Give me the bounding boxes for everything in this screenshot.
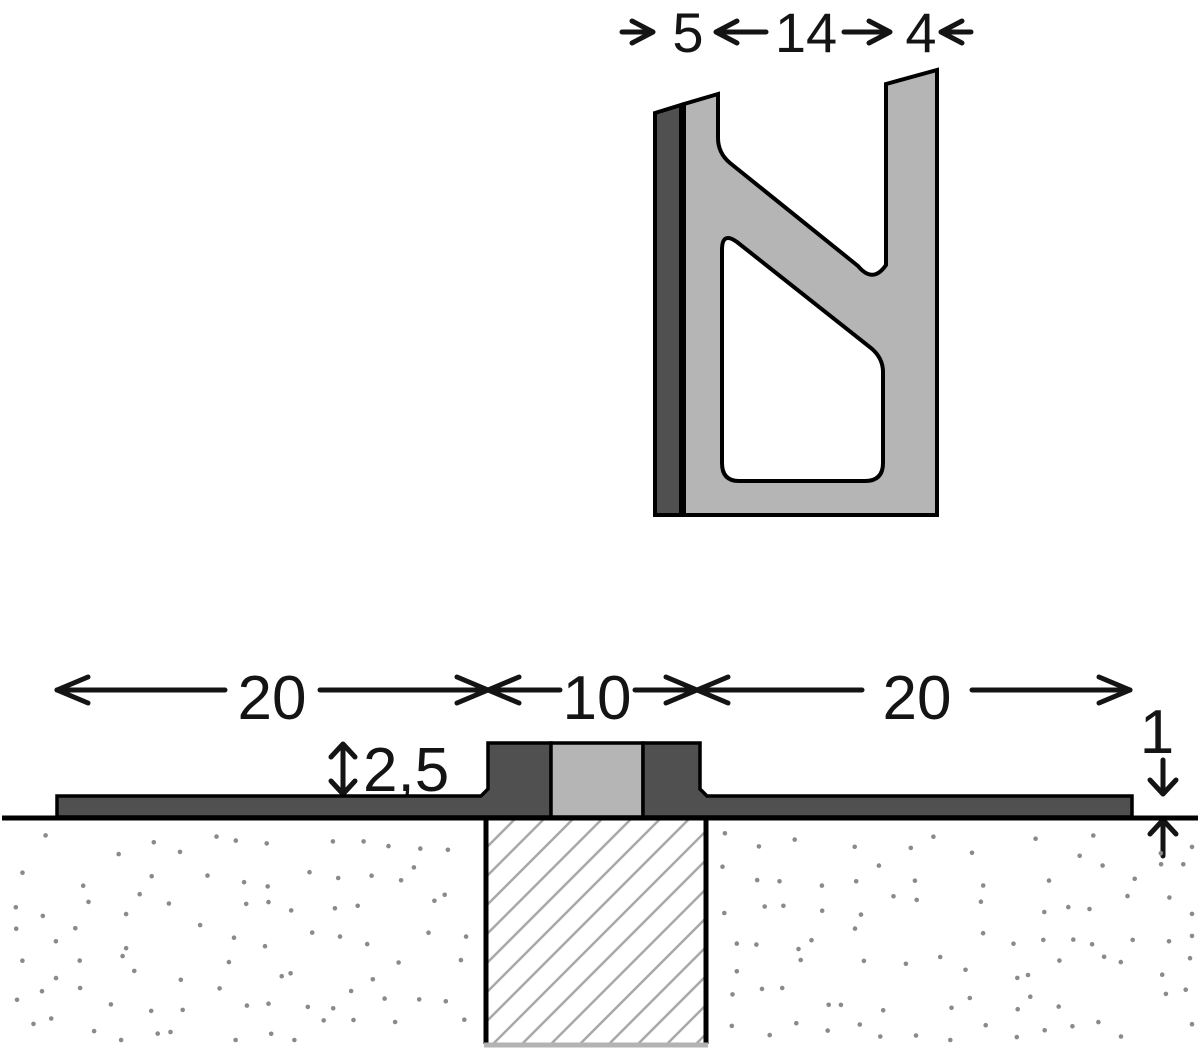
arrow-left-icon <box>941 21 971 43</box>
stipple-dot <box>459 958 464 963</box>
arrow-up-icon <box>1150 820 1176 856</box>
stipple-dot <box>1070 1024 1075 1029</box>
stipple-dot <box>780 986 785 991</box>
stipple-dot <box>233 1038 238 1043</box>
stipple-dot <box>909 846 914 851</box>
stipple-dot <box>119 1038 124 1043</box>
stipple-dot <box>723 831 728 836</box>
stipple-dot <box>853 926 858 931</box>
dimension-label-10: 10 <box>563 664 632 733</box>
dimension-label-14: 14 <box>775 1 837 64</box>
stipple-dot <box>464 934 469 939</box>
stipple-dot <box>825 1028 830 1033</box>
stipple-dot <box>1026 973 1031 978</box>
stipple-dot <box>730 992 735 997</box>
arrow-left-icon <box>716 21 766 43</box>
stipple-dot <box>938 955 943 960</box>
stipple-dot <box>720 864 725 869</box>
arrow-right-icon <box>844 21 890 43</box>
stipple-dot <box>396 960 401 965</box>
stipple-dot <box>735 941 740 946</box>
stipple-dot <box>265 884 270 889</box>
stipple-dot <box>15 998 20 1003</box>
technical-drawing-canvas: 5 14 4 <box>0 0 1200 1050</box>
stipple-dot <box>1190 912 1195 917</box>
stipple-dot <box>839 1003 844 1008</box>
stipple-dot <box>792 837 797 842</box>
stipple-dot <box>288 971 293 976</box>
stipple-dot <box>306 1005 311 1010</box>
arrow-right-icon <box>622 21 653 43</box>
stipple-dot <box>336 876 341 881</box>
stipple-dot <box>1011 941 1016 946</box>
installed-section-view: 20 10 20 2,5 1 <box>2 664 1198 1045</box>
profile-center-insert <box>551 743 643 817</box>
stipple-dot <box>1047 878 1052 883</box>
stipple-dot <box>1100 863 1105 868</box>
stipple-dot <box>333 906 338 911</box>
stipple-dot <box>1102 955 1107 960</box>
stipple-dot <box>81 883 86 888</box>
stipple-dot <box>41 914 46 919</box>
stipple-dot <box>232 935 237 940</box>
joint-filler-block <box>484 818 708 1045</box>
stipple-dot <box>178 850 183 855</box>
stipple-dot <box>1015 1007 1020 1012</box>
stipple-dot <box>31 1022 36 1027</box>
dimension-label-4: 4 <box>905 1 936 64</box>
stipple-dot <box>116 852 121 857</box>
stipple-dot <box>269 1032 274 1037</box>
joint-filler-hatch <box>486 818 706 1045</box>
stipple-dot <box>809 938 814 943</box>
stipple-dot <box>1159 851 1164 856</box>
stipple-dot <box>179 978 184 983</box>
stipple-dot <box>331 1006 336 1011</box>
stipple-dot <box>205 873 210 878</box>
stipple-dot <box>1087 907 1092 912</box>
stipple-dot <box>796 947 801 952</box>
stipple-dot <box>963 968 968 973</box>
stipple-dot <box>399 878 404 883</box>
stipple-dot <box>109 1002 114 1007</box>
stipple-dot <box>904 962 909 967</box>
stipple-dot <box>730 1024 735 1029</box>
stipple-dot <box>310 930 315 935</box>
stipple-dot <box>49 1016 54 1021</box>
stipple-dot <box>132 969 137 974</box>
stipple-dot <box>1125 894 1130 899</box>
stipple-dot <box>20 958 25 963</box>
stipple-dot <box>54 939 59 944</box>
stipple-dot <box>234 838 239 843</box>
stipple-dot <box>757 844 762 849</box>
stipple-dot <box>1015 1035 1020 1040</box>
stipple-dot <box>124 912 129 917</box>
stipple-dot <box>862 959 867 964</box>
stipple-dot <box>149 1009 154 1014</box>
stipple-dot <box>40 989 45 994</box>
stipple-dot <box>14 905 19 910</box>
dimension-label-1: 1 <box>1140 698 1174 767</box>
stipple-dot <box>167 901 172 906</box>
stipple-dot <box>735 969 740 974</box>
stipple-dot <box>214 834 219 839</box>
profile-right-flange <box>643 743 1132 817</box>
stipple-dot <box>1071 937 1076 942</box>
stipple-dot <box>412 865 417 870</box>
stipple-dot <box>361 839 366 844</box>
stipple-dot <box>180 1008 185 1013</box>
stipple-dot <box>1160 972 1165 977</box>
stipple-dot <box>820 908 825 913</box>
stipple-dot <box>1091 833 1096 838</box>
floor-dimension-row: 20 10 20 <box>57 664 1130 733</box>
stipple-dot <box>970 851 975 856</box>
stipple-dot <box>948 1038 953 1043</box>
stipple-dot <box>859 912 864 917</box>
stipple-dot <box>386 844 391 849</box>
arrow-updown-icon <box>331 744 355 794</box>
stipple-dot <box>263 944 268 949</box>
stipple-dot <box>722 911 727 916</box>
stipple-dot <box>92 1029 97 1034</box>
dimension-label-5: 5 <box>672 1 703 64</box>
stipple-dot <box>826 1003 831 1008</box>
stipple-dot <box>1096 1020 1101 1025</box>
stipple-dot <box>1167 895 1172 900</box>
stipple-dot <box>244 902 249 907</box>
stipple-dot <box>338 934 343 939</box>
stipple-dot <box>43 833 48 838</box>
stipple-dot <box>264 841 269 846</box>
stipple-dot <box>266 900 271 905</box>
stipple-dot <box>1190 934 1195 939</box>
stipple-dot <box>426 930 431 935</box>
stipple-dot <box>307 870 312 875</box>
stipple-dot <box>1015 976 1020 981</box>
stipple-dot <box>418 846 423 851</box>
stipple-dot <box>444 999 449 1004</box>
stipple-dot <box>442 893 447 898</box>
stipple-dot <box>168 1030 173 1035</box>
stipple-dot <box>1132 877 1137 882</box>
stipple-dot <box>78 986 83 991</box>
stipple-dot <box>1041 938 1046 943</box>
stipple-dot <box>152 840 157 845</box>
profile-section-view: 5 14 4 <box>622 1 971 515</box>
stipple-dot <box>1119 960 1124 965</box>
stipple-dot <box>1042 1028 1047 1033</box>
stipple-dot <box>86 900 91 905</box>
stipple-dot <box>245 1003 250 1008</box>
stipple-dot <box>417 997 422 1002</box>
stipple-dot <box>446 848 451 853</box>
stipple-dot <box>1042 910 1047 915</box>
stipple-dot <box>1077 854 1082 859</box>
stipple-dot <box>54 976 59 981</box>
stipple-dot <box>931 834 936 839</box>
stipple-dot <box>949 1006 954 1011</box>
stipple-dot <box>149 874 154 879</box>
stipple-dot <box>858 1022 863 1027</box>
stipple-dot <box>371 977 376 982</box>
profile-body <box>684 70 937 515</box>
stipple-dot <box>1181 862 1186 867</box>
profile-left-flange <box>57 743 551 817</box>
stipple-dot <box>137 892 142 897</box>
thickness-dimension: 1 <box>1140 698 1176 856</box>
profile-dimension-row: 5 14 4 <box>622 1 971 64</box>
stipple-dot <box>914 898 919 903</box>
stipple-dot <box>120 954 125 959</box>
stipple-dot <box>217 986 222 991</box>
stipple-dot <box>913 878 918 883</box>
stipple-dot <box>1164 992 1169 997</box>
stipple-dot <box>351 1018 356 1023</box>
stipple-dot <box>349 989 354 994</box>
stipple-dot <box>198 923 203 928</box>
stipple-dot <box>124 946 129 951</box>
stipple-dot <box>781 904 786 909</box>
stipple-dot <box>1056 1004 1061 1009</box>
diagram-svg: 5 14 4 <box>0 0 1200 1050</box>
stipple-dot <box>242 880 247 885</box>
stipple-dot <box>981 931 986 936</box>
stipple-dot <box>762 904 767 909</box>
stipple-dot <box>891 894 896 899</box>
stipple-dot <box>1167 939 1172 944</box>
stipple-dot <box>369 873 374 878</box>
stipple-dot <box>14 926 19 931</box>
stipple-dot <box>355 904 360 909</box>
stipple-dot <box>279 974 284 979</box>
stipple-dot <box>968 996 973 1001</box>
stipple-dot <box>854 879 859 884</box>
stipple-dot <box>852 845 857 850</box>
stipple-dot <box>983 1023 988 1028</box>
stipple-dot <box>979 899 984 904</box>
stipple-dot <box>981 883 986 888</box>
stipple-dot <box>266 1001 271 1006</box>
stipple-dot <box>292 1038 297 1043</box>
stipple-dot <box>1190 1022 1195 1027</box>
stipple-dot <box>1190 845 1195 850</box>
stipple-dot <box>365 942 370 947</box>
stipple-dot <box>755 878 760 883</box>
stipple-dot <box>1028 994 1033 999</box>
stipple-dot <box>393 1020 398 1025</box>
stipple-dot <box>382 996 387 1001</box>
stipple-dot <box>777 879 782 884</box>
stipple-dot <box>321 1018 326 1023</box>
stipple-dot <box>881 1008 886 1013</box>
stipple-dot <box>77 958 82 963</box>
stipple-dot <box>1183 987 1188 992</box>
stipple-dot <box>1188 956 1193 961</box>
stipple-dot <box>1033 836 1038 841</box>
stipple-dot <box>794 1021 799 1026</box>
stipple-dot <box>877 863 882 868</box>
dimension-label-20-left: 20 <box>238 664 307 733</box>
profile-dark-strip <box>655 105 681 515</box>
stipple-dot <box>798 958 803 963</box>
stipple-dot <box>462 1017 467 1022</box>
stipple-dot <box>432 899 437 904</box>
dimension-label-20-right: 20 <box>883 664 952 733</box>
stipple-dot <box>754 942 759 947</box>
stipple-dot <box>1066 905 1071 910</box>
stipple-dot <box>760 987 765 992</box>
stipple-dot <box>1130 938 1135 943</box>
stipple-dot <box>227 960 232 965</box>
stipple-dot <box>20 870 25 875</box>
stipple-dot <box>73 926 78 931</box>
stipple-dot <box>331 839 336 844</box>
stipple-dot <box>1119 1034 1124 1039</box>
stipple-dot <box>155 1031 160 1036</box>
stipple-dot <box>820 883 825 888</box>
stipple-dot <box>289 908 294 913</box>
stipple-dot <box>1090 942 1095 947</box>
stipple-dot <box>878 1034 883 1039</box>
stipple-dot <box>1159 862 1164 867</box>
stipple-dot <box>767 1033 772 1038</box>
stipple-dot <box>1057 958 1062 963</box>
stipple-dot <box>914 1033 919 1038</box>
